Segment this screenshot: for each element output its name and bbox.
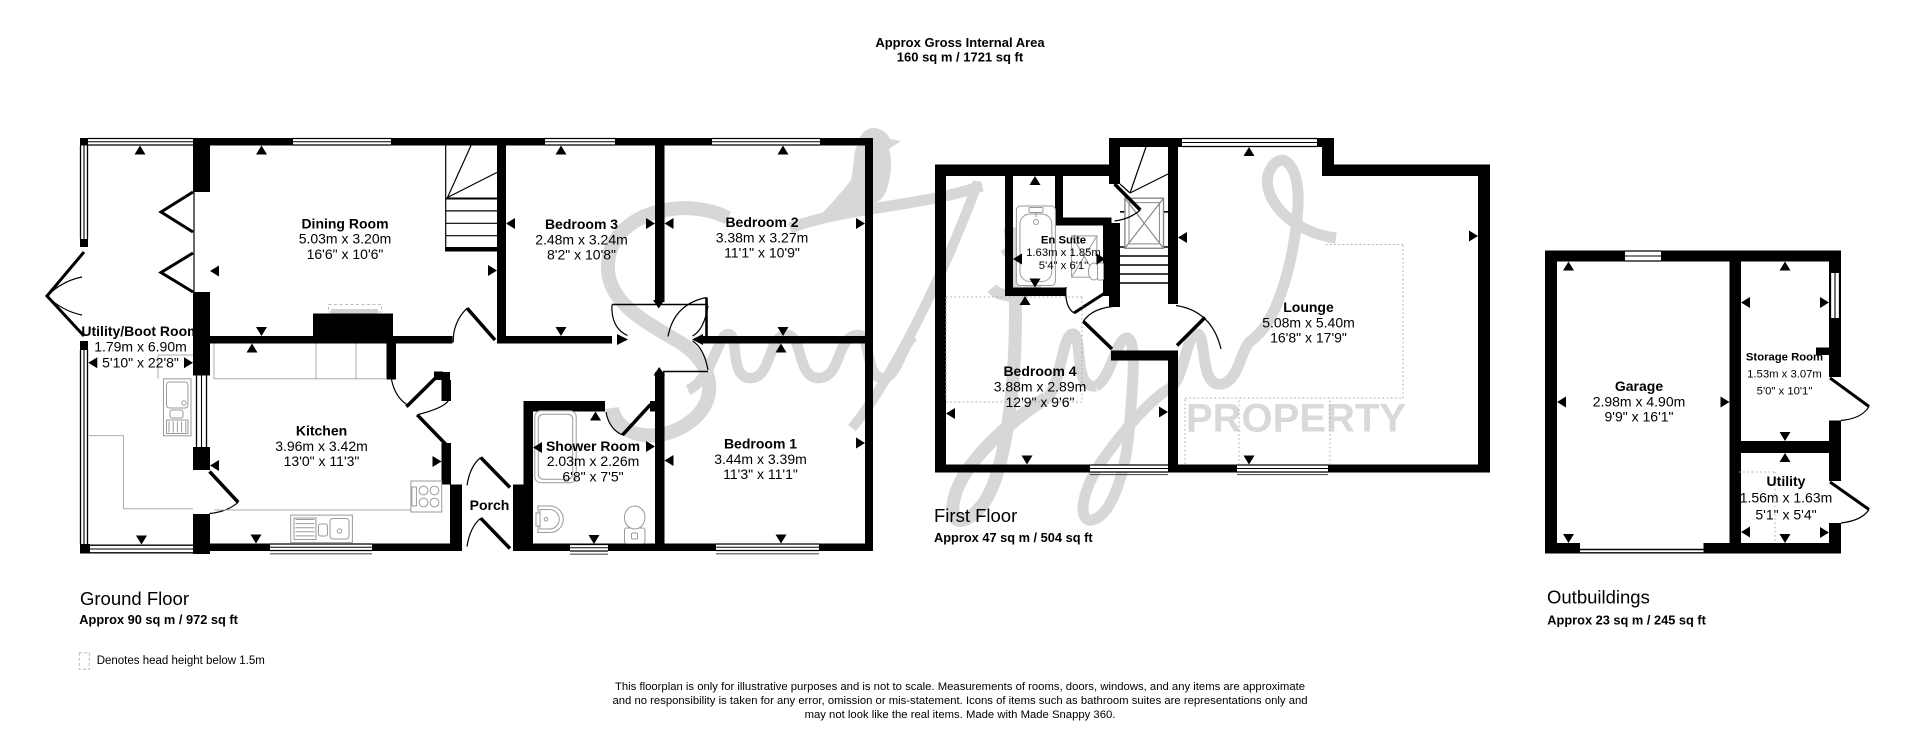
svg-text:Approx 90 sq m / 972 sq ft: Approx 90 sq m / 972 sq ft xyxy=(79,612,238,627)
svg-text:1.63m x 1.85m: 1.63m x 1.85m xyxy=(1026,247,1101,259)
svg-text:16'6" x 10'6": 16'6" x 10'6" xyxy=(307,246,384,262)
svg-text:Bedroom 3: Bedroom 3 xyxy=(545,216,618,232)
svg-text:5'0" x 10'1": 5'0" x 10'1" xyxy=(1757,386,1813,398)
svg-text:11'1" x 10'9": 11'1" x 10'9" xyxy=(724,245,800,261)
svg-text:1.56m x 1.63m: 1.56m x 1.63m xyxy=(1740,490,1833,506)
svg-text:160 sq m / 1721 sq ft: 160 sq m / 1721 sq ft xyxy=(897,50,1024,65)
svg-text:6'8" x 7'5": 6'8" x 7'5" xyxy=(562,469,623,485)
svg-text:9'9" x 16'1": 9'9" x 16'1" xyxy=(1605,409,1674,425)
svg-text:2.98m x 4.90m: 2.98m x 4.90m xyxy=(1593,393,1686,409)
svg-text:Garage: Garage xyxy=(1615,378,1663,394)
svg-text:Utility: Utility xyxy=(1767,473,1806,489)
svg-text:Approx 23 sq m / 245 sq ft: Approx 23 sq m / 245 sq ft xyxy=(1547,612,1706,627)
svg-text:12'9" x 9'6": 12'9" x 9'6" xyxy=(1006,394,1075,410)
svg-text:Ground Floor: Ground Floor xyxy=(80,588,189,609)
svg-text:13'0" x 11'3": 13'0" x 11'3" xyxy=(284,453,360,469)
svg-text:1.53m x 3.07m: 1.53m x 3.07m xyxy=(1747,369,1822,381)
svg-text:3.38m x 3.27m: 3.38m x 3.27m xyxy=(716,229,809,245)
svg-text:Storage Room: Storage Room xyxy=(1746,352,1823,364)
svg-text:PROPERTY: PROPERTY xyxy=(1186,397,1406,441)
svg-text:8'2" x 10'8": 8'2" x 10'8" xyxy=(547,247,616,263)
svg-text:Denotes head height below 1.5m: Denotes head height below 1.5m xyxy=(97,655,265,667)
svg-text:First Floor: First Floor xyxy=(934,505,1017,526)
svg-text:5'1" x 5'4": 5'1" x 5'4" xyxy=(1755,506,1816,522)
svg-text:3.88m x 2.89m: 3.88m x 2.89m xyxy=(994,379,1087,395)
svg-text:5.08m x 5.40m: 5.08m x 5.40m xyxy=(1262,314,1355,330)
svg-text:5'10" x 22'8": 5'10" x 22'8" xyxy=(102,354,179,370)
svg-text:Outbuildings: Outbuildings xyxy=(1547,587,1650,608)
svg-text:may not look like the real ite: may not look like the real items. Made w… xyxy=(805,709,1116,721)
svg-text:This floorplan is only for ill: This floorplan is only for illustrative … xyxy=(615,681,1305,693)
svg-text:Shower Room: Shower Room xyxy=(546,438,640,454)
svg-text:Dining Room: Dining Room xyxy=(301,215,388,231)
svg-text:Kitchen: Kitchen xyxy=(296,423,347,439)
svg-text:Bedroom 4: Bedroom 4 xyxy=(1003,363,1076,379)
svg-text:En Suite: En Suite xyxy=(1041,235,1086,247)
svg-text:Bedroom 2: Bedroom 2 xyxy=(725,214,798,230)
svg-text:1.79m x 6.90m: 1.79m x 6.90m xyxy=(94,339,187,355)
svg-text:16'8" x 17'9": 16'8" x 17'9" xyxy=(1270,330,1347,346)
svg-text:5'4" x 6'1": 5'4" x 6'1" xyxy=(1039,260,1088,272)
svg-text:Approx 47 sq m / 504 sq ft: Approx 47 sq m / 504 sq ft xyxy=(934,530,1093,545)
svg-text:Utility/Boot Room: Utility/Boot Room xyxy=(81,323,199,339)
svg-text:11'3" x 11'1": 11'3" x 11'1" xyxy=(723,466,798,482)
svg-text:3.44m x 3.39m: 3.44m x 3.39m xyxy=(714,451,807,467)
svg-text:Bedroom 1: Bedroom 1 xyxy=(724,436,797,452)
svg-text:Porch: Porch xyxy=(470,497,510,513)
svg-text:Lounge: Lounge xyxy=(1283,299,1334,315)
svg-text:2.03m x 2.26m: 2.03m x 2.26m xyxy=(547,453,640,469)
svg-text:2.48m x 3.24m: 2.48m x 3.24m xyxy=(535,231,628,247)
svg-text:5.03m x 3.20m: 5.03m x 3.20m xyxy=(299,231,392,247)
svg-text:and no responsibility is taken: and no responsibility is taken for any e… xyxy=(612,695,1307,707)
svg-text:Approx Gross Internal Area: Approx Gross Internal Area xyxy=(875,35,1045,50)
svg-text:3.96m x 3.42m: 3.96m x 3.42m xyxy=(275,438,368,454)
